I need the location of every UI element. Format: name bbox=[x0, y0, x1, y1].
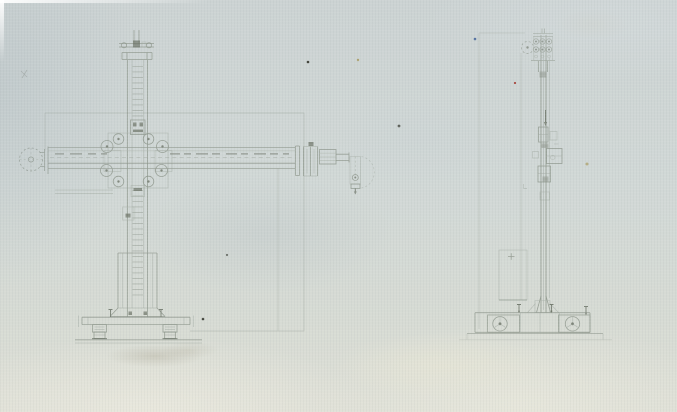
side-reference-outline bbox=[479, 33, 525, 329]
side-elevation-view bbox=[459, 29, 612, 340]
drawing-canvas bbox=[0, 0, 677, 412]
front-wheel-right bbox=[163, 325, 178, 339]
front-saddle-carriage bbox=[101, 120, 173, 220]
front-boom bbox=[45, 147, 296, 175]
technical-drawing-photo bbox=[0, 0, 677, 412]
side-pulley-cluster bbox=[522, 29, 556, 78]
side-carriage bbox=[524, 110, 563, 200]
front-reference-outline bbox=[45, 113, 304, 331]
paper-specks bbox=[21, 38, 589, 321]
side-wheel-right bbox=[565, 317, 579, 331]
front-guide-rollers bbox=[101, 134, 169, 187]
pencil-scribble bbox=[21, 70, 27, 78]
front-boom-head bbox=[296, 142, 375, 195]
side-base-carriage bbox=[459, 296, 612, 340]
front-handwheel bbox=[20, 148, 45, 171]
front-base-carriage bbox=[75, 316, 202, 344]
front-wheel-left bbox=[92, 325, 107, 339]
side-counterweight bbox=[499, 250, 527, 300]
side-wheel-left bbox=[493, 317, 507, 331]
front-elevation-view bbox=[20, 30, 375, 343]
